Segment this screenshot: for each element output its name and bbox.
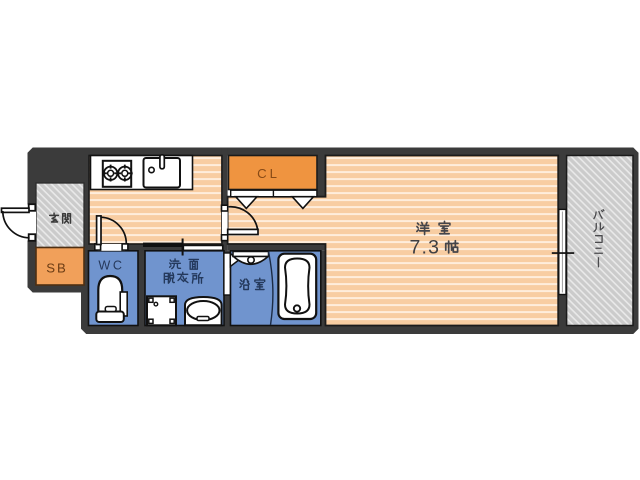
svg-text:WC: WC (98, 259, 124, 273)
svg-text:7.3: 7.3 (410, 237, 441, 259)
svg-text:SB: SB (46, 260, 68, 275)
svg-text:CL: CL (257, 166, 280, 181)
